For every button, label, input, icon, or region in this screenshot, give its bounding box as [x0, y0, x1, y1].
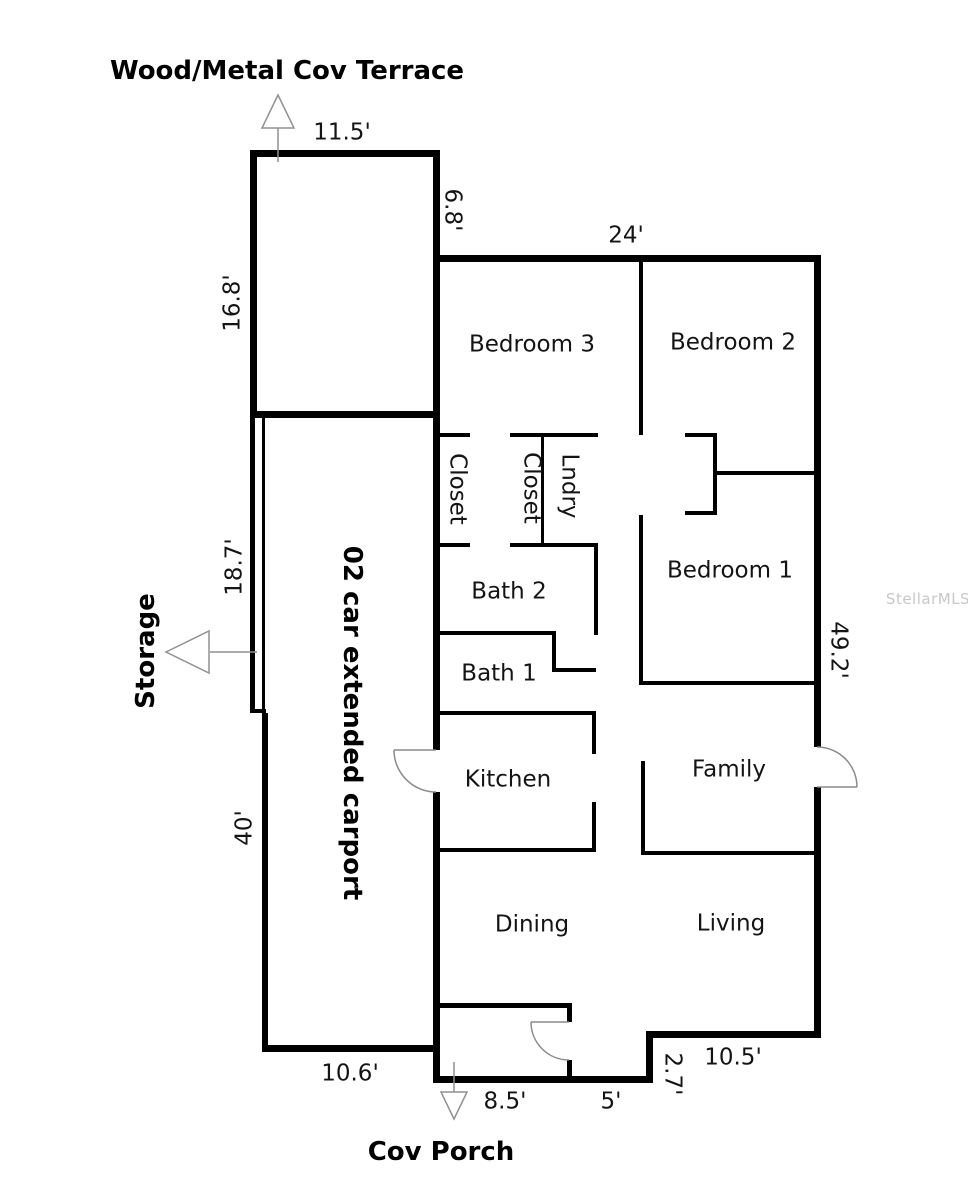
carport-title: 02 car extended carport — [339, 546, 365, 900]
room-label-dining: Dining — [495, 914, 569, 937]
dim-house-right-height: 49.2' — [827, 621, 850, 679]
dim-terrace-width: 11.5' — [313, 122, 371, 145]
dim-carport-length: 40' — [234, 810, 257, 846]
room-label-bedroom2: Bedroom 2 — [670, 332, 796, 355]
dim-step-depth: 2.7' — [661, 1053, 684, 1096]
room-label-bedroom1: Bedroom 1 — [667, 560, 793, 583]
dim-terrace-height: 16.8' — [222, 274, 245, 332]
room-label-laundry: Lndry — [558, 453, 581, 518]
room-label-bath1: Bath 1 — [461, 663, 536, 686]
dim-entry-width: 5' — [601, 1091, 622, 1114]
dim-house-top-width: 24' — [608, 225, 644, 248]
floor-plan: Wood/Metal Cov Terrace Storage 02 car ex… — [0, 0, 968, 1200]
dim-porch-width: 8.5' — [484, 1091, 527, 1114]
room-label-closet1: Closet — [446, 453, 469, 525]
front-door-arc — [531, 1022, 569, 1060]
room-label-bedroom3: Bedroom 3 — [469, 334, 595, 357]
dim-carport-bottom-width: 10.6' — [321, 1063, 379, 1086]
room-label-living: Living — [697, 913, 765, 936]
porch-title: Cov Porch — [368, 1139, 515, 1165]
storage-arrow-icon — [166, 631, 209, 673]
terrace-arrow-icon — [262, 95, 294, 128]
kitchen-door-arc — [394, 750, 436, 792]
dim-storage-strip-length: 18.7' — [224, 538, 247, 596]
room-label-kitchen: Kitchen — [465, 769, 551, 792]
room-label-family: Family — [692, 759, 766, 782]
room-label-closet2: Closet — [520, 452, 543, 524]
mls-watermark: StellarMLS — [886, 590, 968, 608]
dim-terrace-right-side: 6.8' — [441, 189, 464, 232]
terrace-title: Wood/Metal Cov Terrace — [110, 58, 464, 84]
storage-title: Storage — [133, 593, 159, 709]
dim-bottom-right-width: 10.5' — [704, 1047, 762, 1070]
porch-arrow-icon — [441, 1092, 467, 1119]
room-label-bath2: Bath 2 — [471, 581, 546, 604]
entry-door-arc — [817, 747, 857, 787]
